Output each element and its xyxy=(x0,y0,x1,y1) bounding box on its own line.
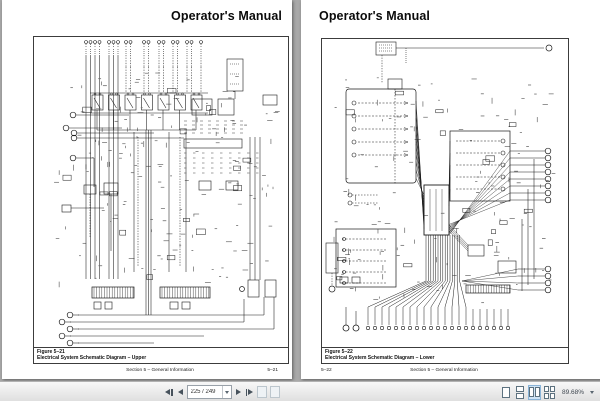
figure-title: Electrical System Schematic Diagram – Up… xyxy=(37,355,288,361)
first-page-icon[interactable] xyxy=(164,385,174,399)
footer-section: Section 5 – General Information xyxy=(33,368,287,373)
page-number-field xyxy=(187,385,232,399)
page-right: Operator's Manual Figure 5–22 Electrical… xyxy=(301,0,600,379)
next-view-icon[interactable] xyxy=(270,386,280,398)
page-field-caret-icon[interactable] xyxy=(222,386,231,398)
figure-box-upper: Figure 5–21 Electrical System Schematic … xyxy=(33,36,289,364)
schematic-diagram-lower xyxy=(322,39,568,347)
facing-view-icon[interactable] xyxy=(528,385,541,400)
prev-view-icon[interactable] xyxy=(257,386,267,398)
zoom-caret-icon[interactable] xyxy=(590,391,594,394)
figure-title: Electrical System Schematic Diagram – Lo… xyxy=(325,355,568,361)
figure-caption: Figure 5–21 Electrical System Schematic … xyxy=(34,347,288,361)
continuous-facing-view-icon[interactable] xyxy=(544,386,555,399)
last-page-icon[interactable] xyxy=(245,385,255,399)
page-navigation xyxy=(164,382,280,401)
viewer-toolbar: 89.68% xyxy=(0,381,600,401)
zoom-controls: 89.68% xyxy=(500,382,600,401)
single-page-view-icon[interactable] xyxy=(500,386,511,399)
pdf-viewer: Operator's Manual Figure 5–21 Electrical… xyxy=(0,0,600,401)
footer-page-number: 5–21 xyxy=(267,368,278,373)
page-left: Operator's Manual Figure 5–21 Electrical… xyxy=(2,0,292,379)
page-number-input[interactable] xyxy=(188,386,222,398)
schematic-diagram-upper xyxy=(34,37,288,347)
figure-box-lower: Figure 5–22 Electrical System Schematic … xyxy=(321,38,569,364)
continuous-view-icon[interactable] xyxy=(514,386,525,399)
zoom-level-value: 89.68% xyxy=(562,389,584,396)
figure-caption: Figure 5–22 Electrical System Schematic … xyxy=(322,347,568,361)
next-page-icon[interactable] xyxy=(235,385,242,399)
page-title: Operator's Manual xyxy=(171,9,282,23)
prev-page-icon[interactable] xyxy=(177,385,184,399)
page-title: Operator's Manual xyxy=(319,9,430,23)
footer-section: Section 5 – General Information xyxy=(321,368,567,373)
